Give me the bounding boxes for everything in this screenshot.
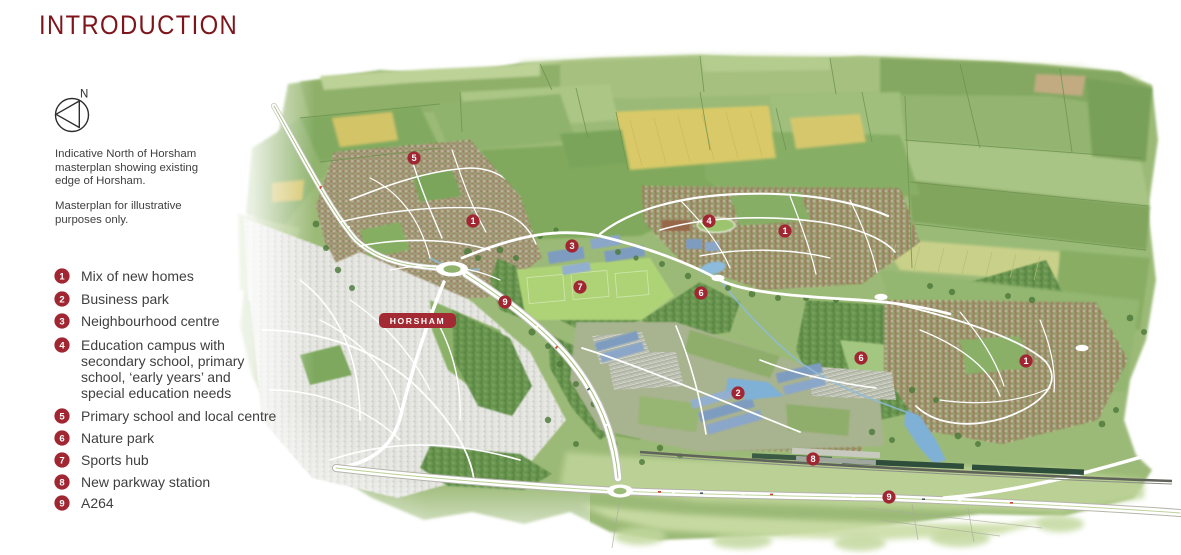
svg-text:7: 7	[59, 456, 64, 467]
svg-text:Education campus with: Education campus with	[81, 337, 225, 353]
svg-text:secondary school, primary: secondary school, primary	[81, 353, 244, 369]
svg-text:5: 5	[411, 153, 416, 163]
svg-text:school, ‘early years’ and: school, ‘early years’ and	[81, 369, 231, 385]
svg-text:1: 1	[59, 272, 65, 283]
svg-text:Primary school and local centr: Primary school and local centre	[81, 408, 277, 424]
svg-text:2: 2	[59, 295, 64, 306]
svg-text:6: 6	[59, 434, 64, 445]
svg-text:3: 3	[569, 241, 574, 251]
svg-text:4: 4	[59, 341, 65, 352]
svg-text:5: 5	[59, 412, 65, 423]
svg-text:HORSHAM: HORSHAM	[390, 316, 446, 326]
svg-text:3: 3	[59, 317, 64, 328]
svg-text:4: 4	[706, 216, 712, 226]
svg-text:special education needs: special education needs	[81, 385, 231, 401]
svg-text:1: 1	[782, 226, 787, 236]
svg-text:Mix of new homes: Mix of new homes	[81, 268, 194, 284]
svg-text:Neighbourhood centre: Neighbourhood centre	[81, 313, 220, 329]
svg-text:8: 8	[59, 478, 64, 489]
svg-text:Nature park: Nature park	[81, 430, 155, 446]
svg-text:1: 1	[1023, 356, 1028, 366]
svg-text:9: 9	[886, 492, 891, 502]
svg-text:6: 6	[858, 353, 863, 363]
svg-text:Business park: Business park	[81, 291, 170, 307]
svg-text:1: 1	[470, 216, 475, 226]
svg-text:7: 7	[577, 282, 582, 292]
svg-text:9: 9	[59, 499, 64, 510]
svg-text:8: 8	[810, 454, 815, 464]
svg-text:6: 6	[698, 288, 703, 298]
svg-text:A264: A264	[81, 495, 114, 511]
svg-text:New parkway station: New parkway station	[81, 474, 210, 490]
svg-text:Sports hub: Sports hub	[81, 452, 149, 468]
svg-text:2: 2	[735, 388, 740, 398]
svg-text:N: N	[80, 89, 88, 101]
svg-text:9: 9	[502, 297, 507, 307]
